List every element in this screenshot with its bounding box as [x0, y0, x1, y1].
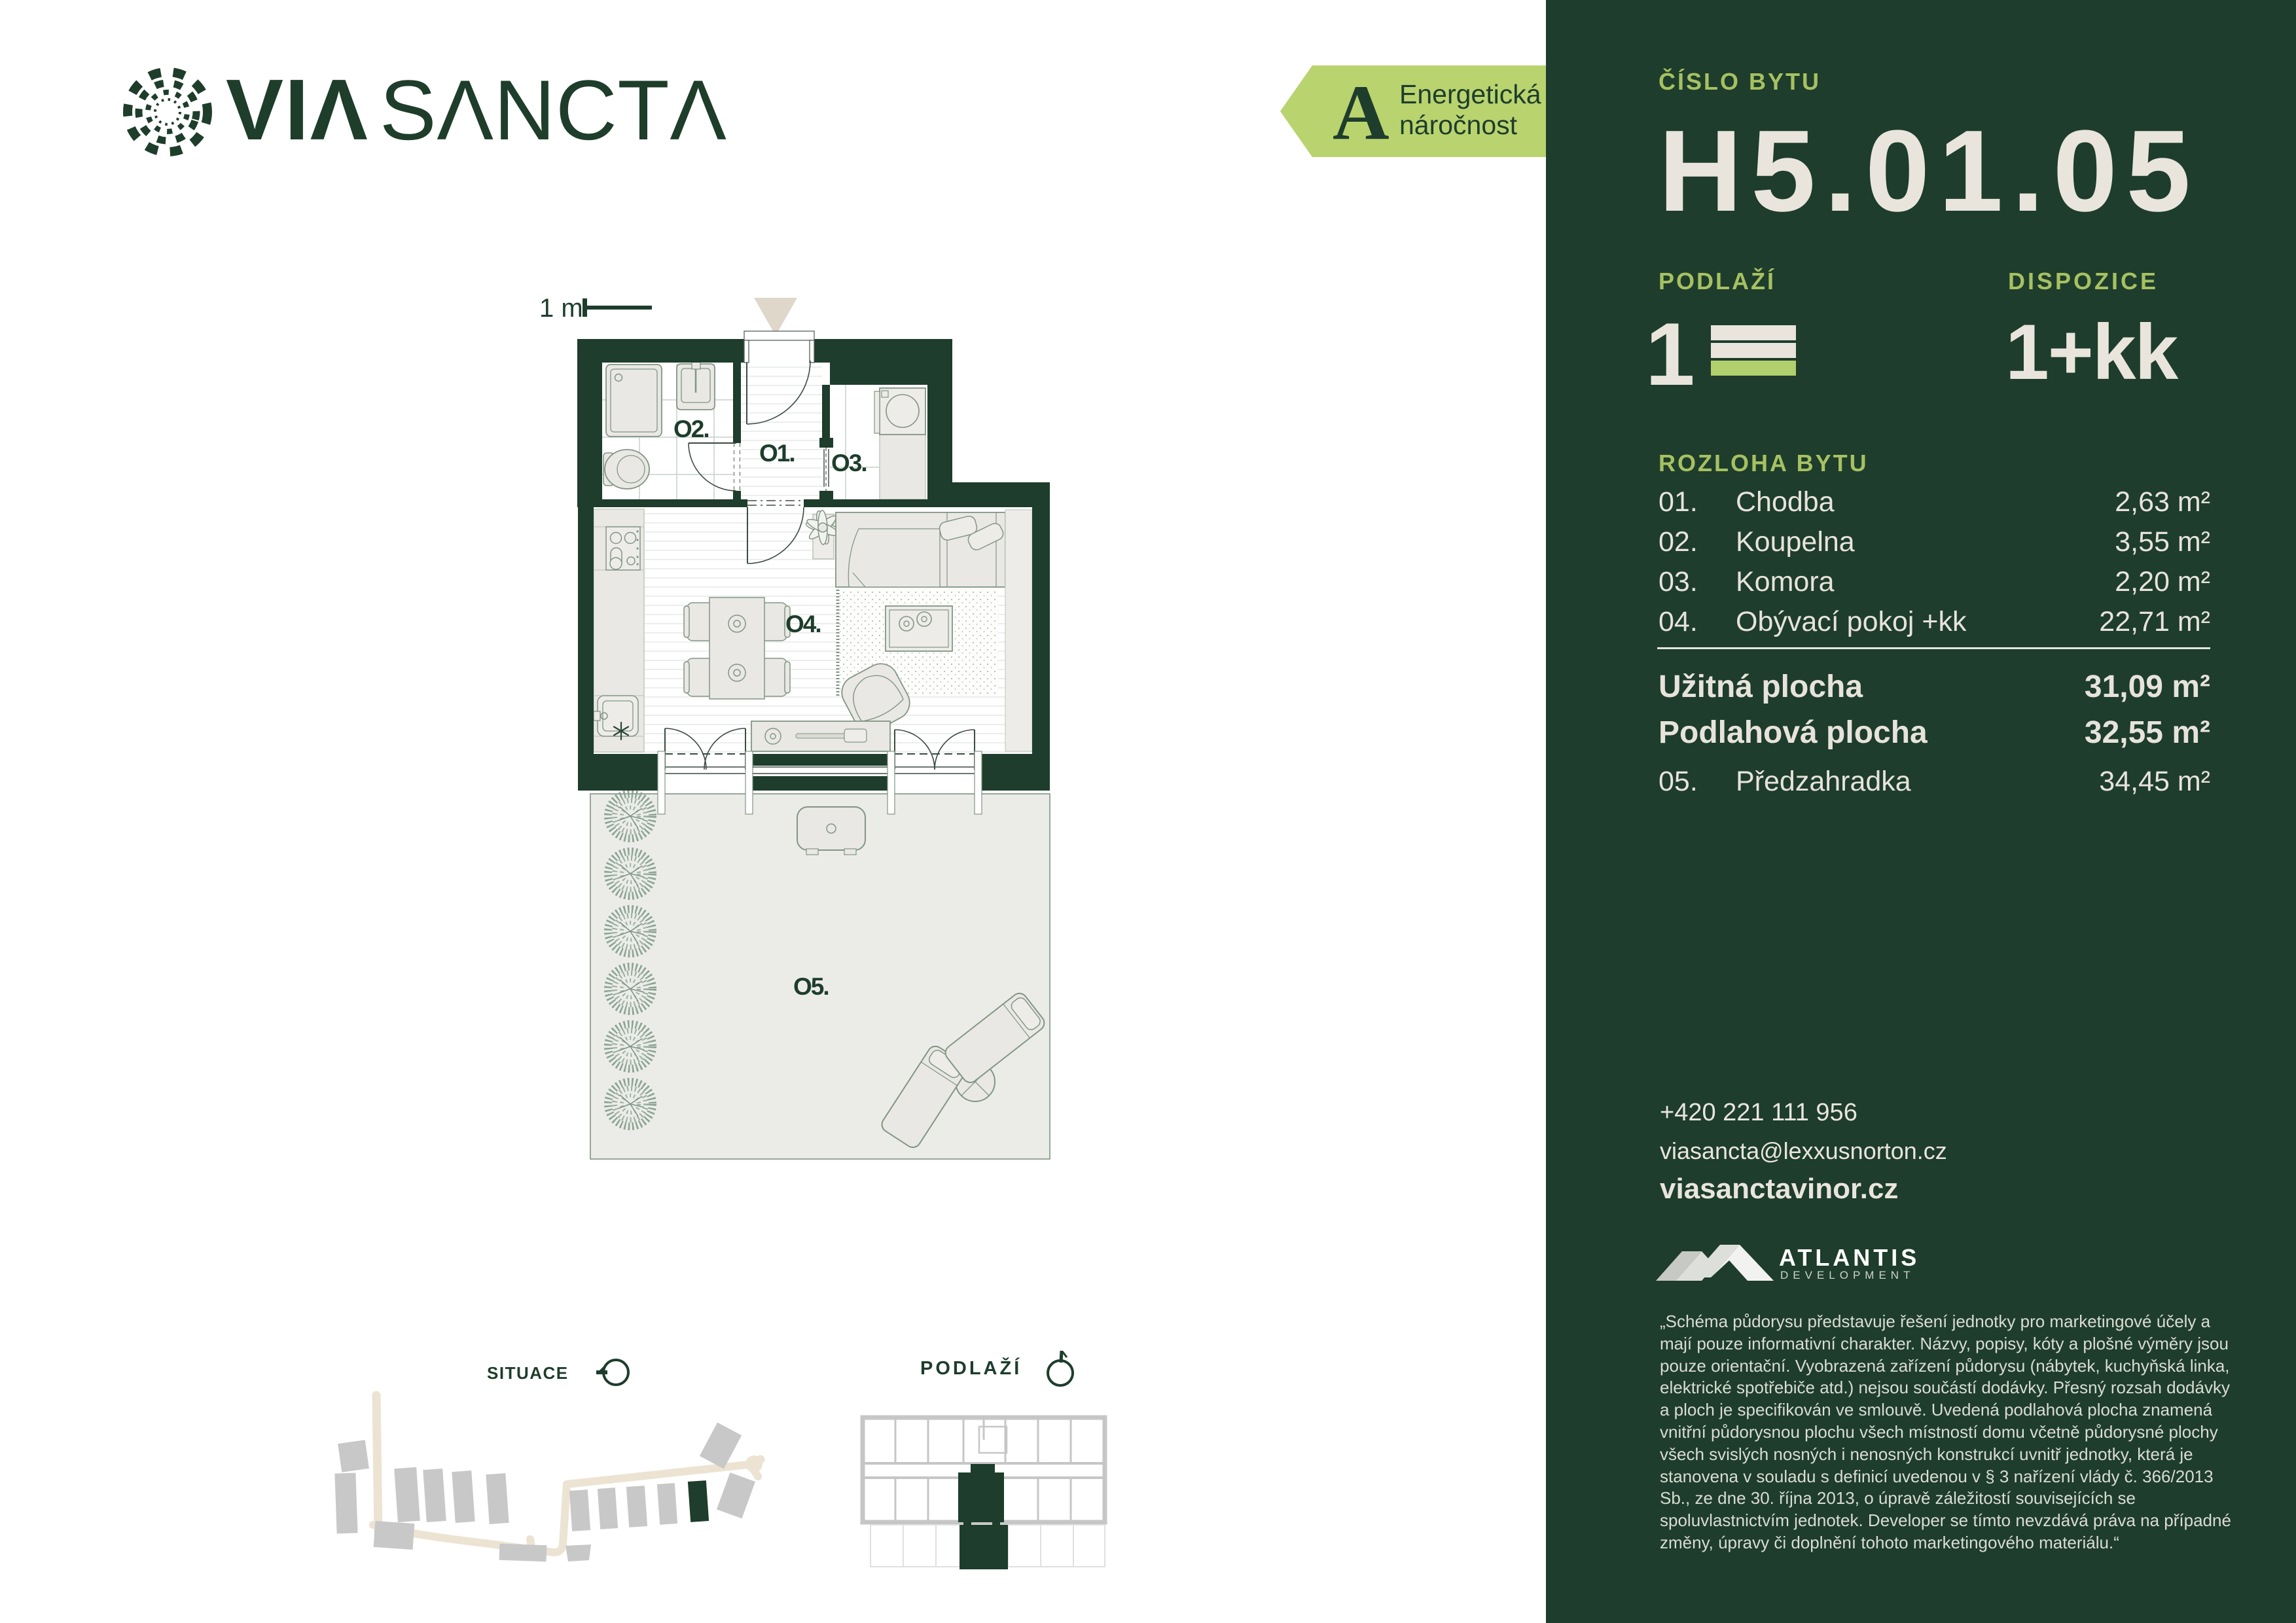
- svg-text:O4.: O4.: [785, 611, 821, 637]
- svg-text:O1.: O1.: [759, 440, 795, 467]
- svg-text:O3.: O3.: [831, 450, 867, 476]
- svg-text:O2.: O2.: [673, 416, 709, 442]
- svg-text:SΛNCTΛ: SΛNCTΛ: [380, 62, 727, 158]
- svg-text:1 m: 1 m: [539, 294, 583, 323]
- svg-text:DEVELOPMENT: DEVELOPMENT: [1780, 1269, 1914, 1281]
- svg-text:A: A: [1333, 69, 1390, 156]
- svg-text:náročnost: náročnost: [1399, 110, 1518, 140]
- svg-text:Energetická: Energetická: [1399, 79, 1541, 109]
- svg-text:ATLANTIS: ATLANTIS: [1779, 1244, 1920, 1271]
- svg-text:VIΛ: VIΛ: [226, 62, 369, 158]
- svg-text:O5.: O5.: [793, 973, 829, 1000]
